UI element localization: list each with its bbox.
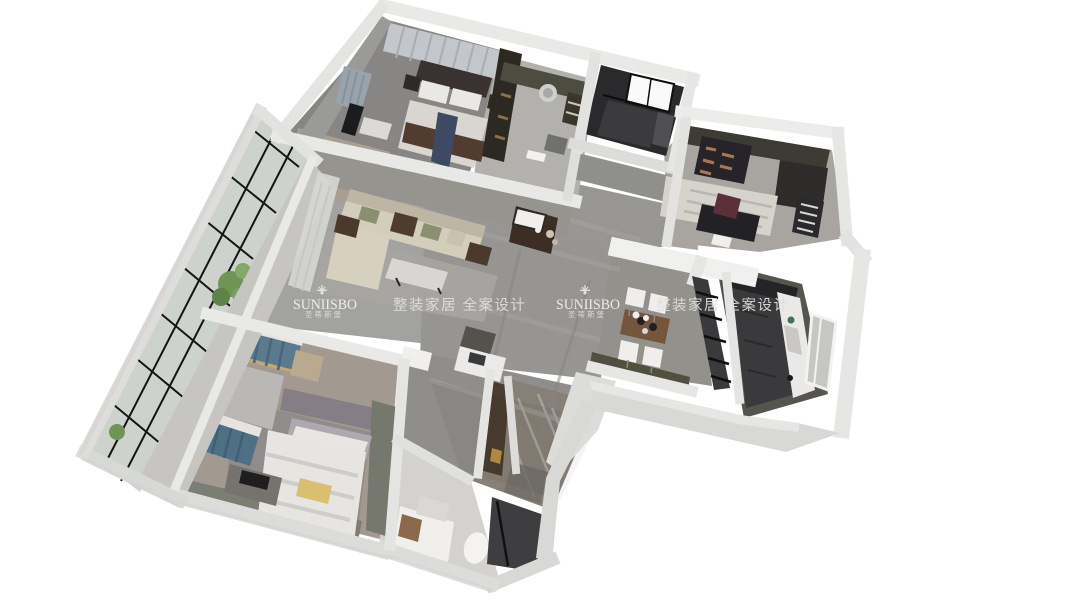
svg-text:整装家居 全案设计: 整装家居 全案设计 xyxy=(656,296,789,314)
svg-text:整装家居 全案设计: 整装家居 全案设计 xyxy=(393,296,526,314)
svg-text:圣蒂斯堡: 圣蒂斯堡 xyxy=(305,309,343,319)
svg-text:圣蒂斯堡: 圣蒂斯堡 xyxy=(568,309,606,319)
